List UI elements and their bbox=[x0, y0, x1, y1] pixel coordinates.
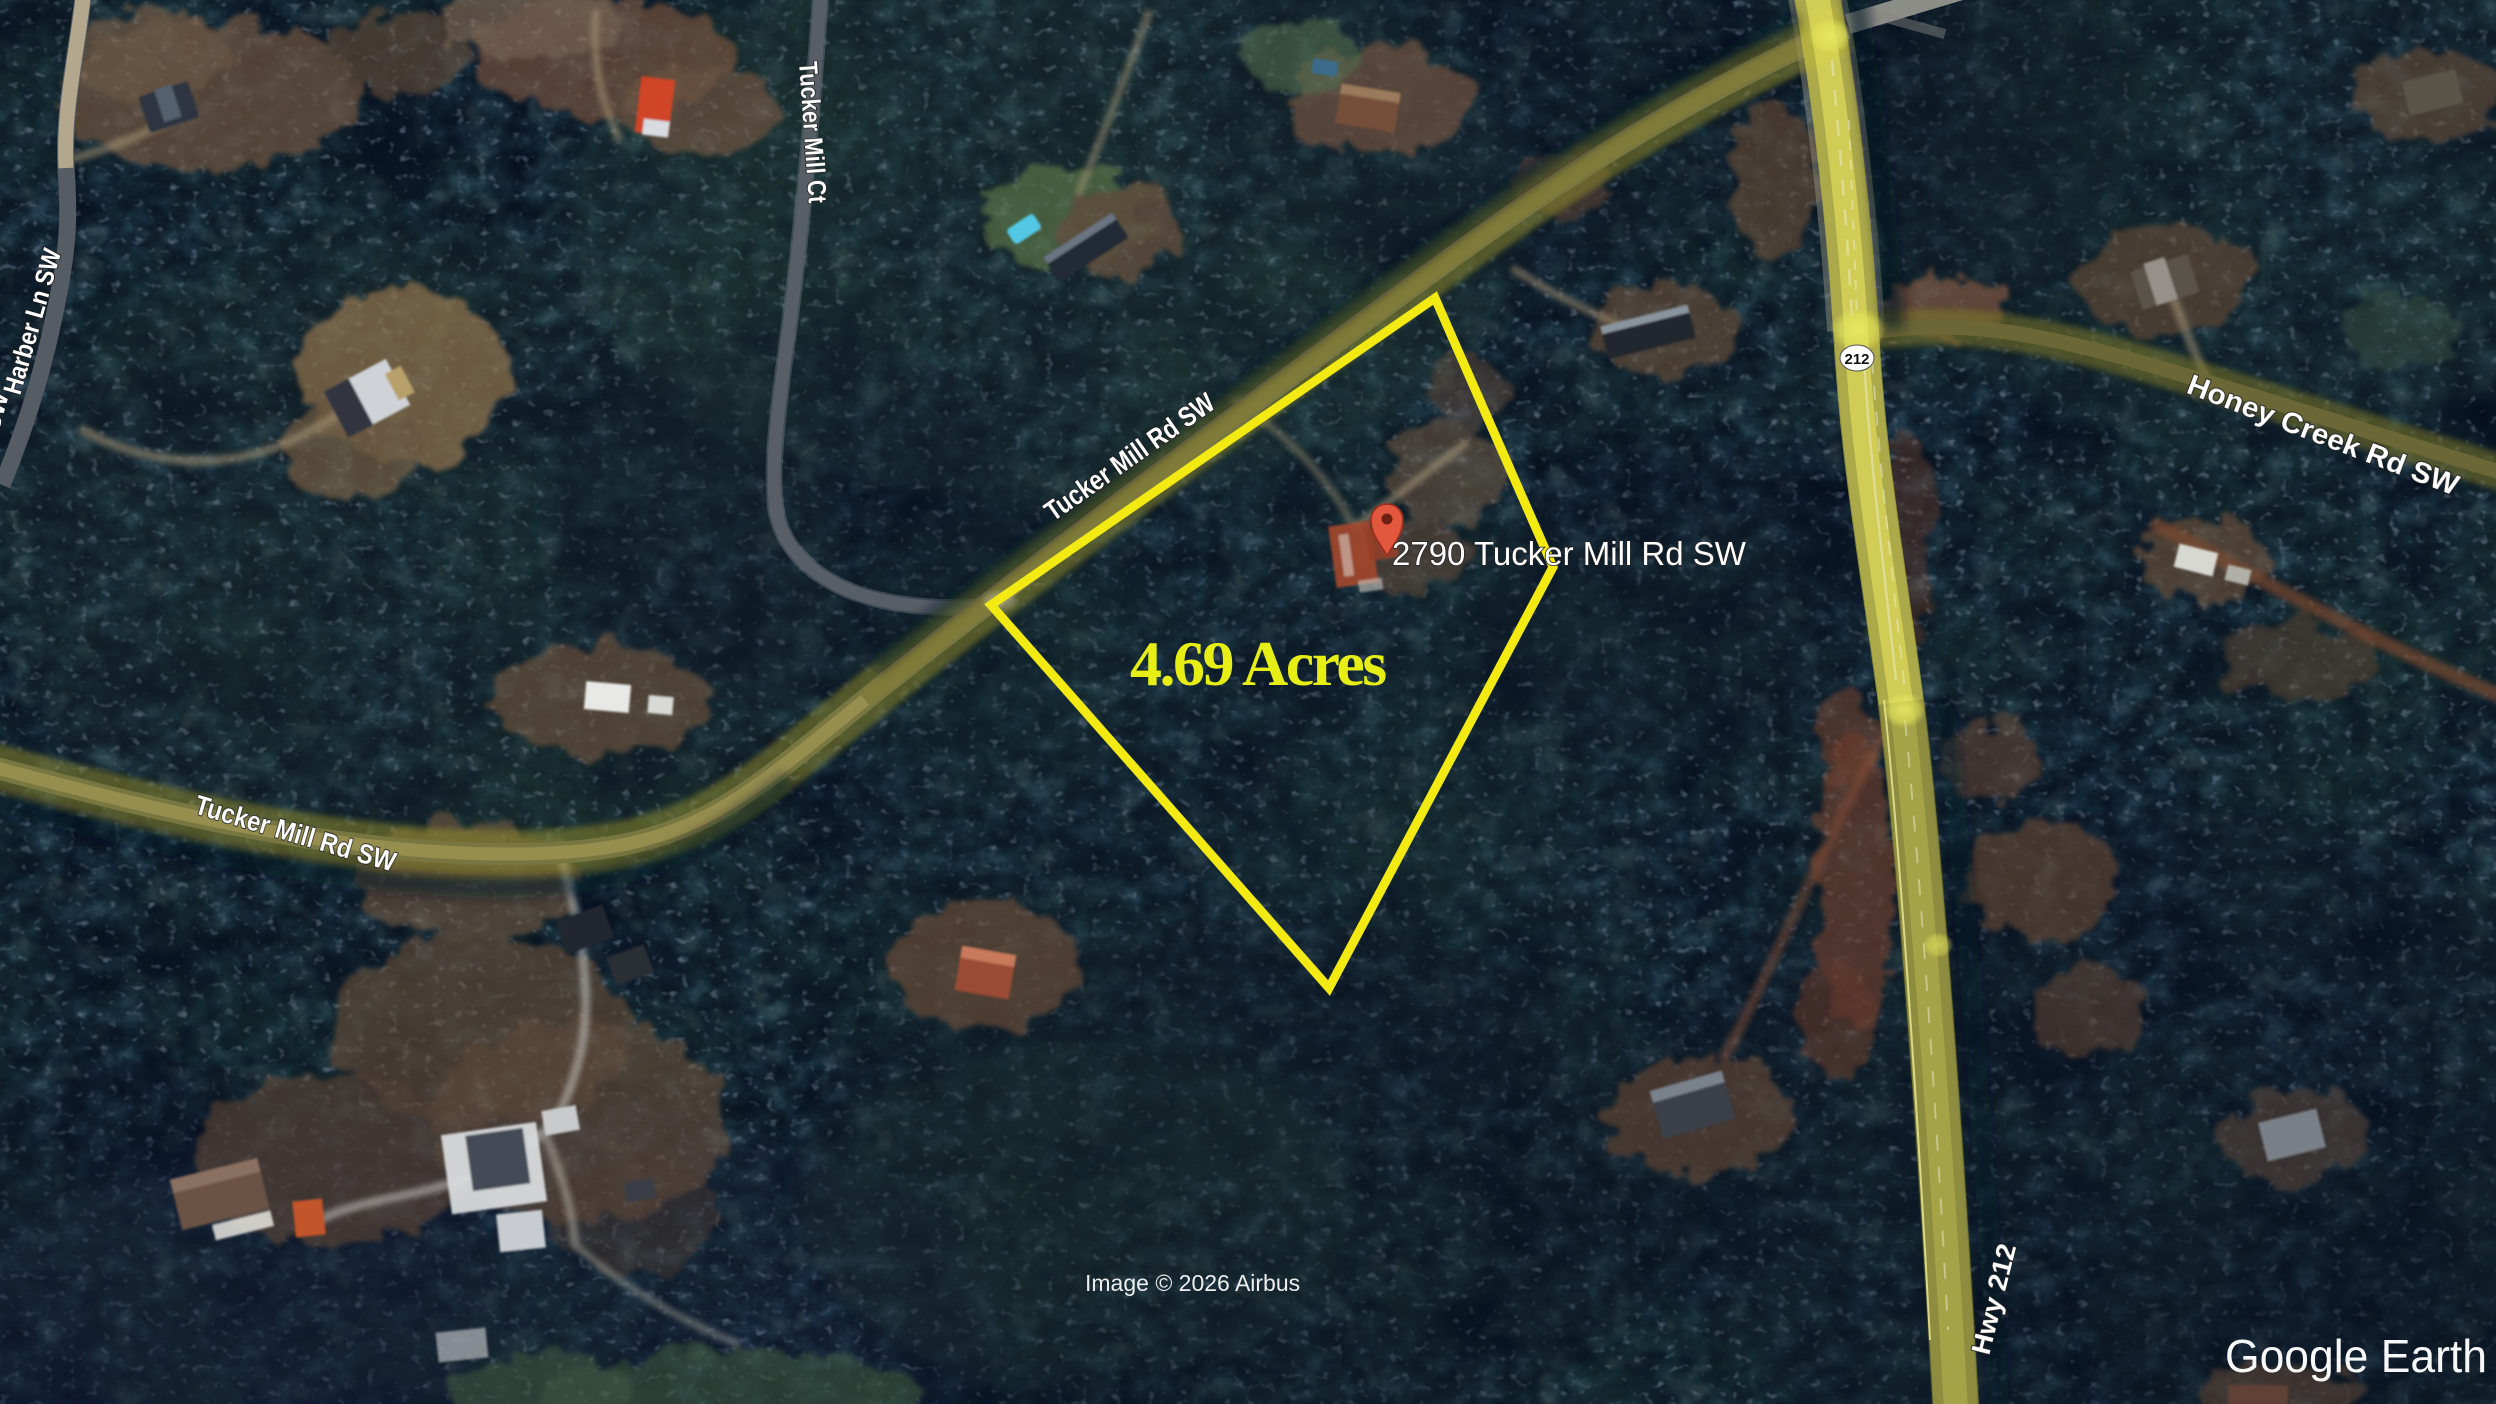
svg-text:Google Earth: Google Earth bbox=[2225, 1330, 2487, 1382]
svg-text:212: 212 bbox=[1844, 351, 1869, 368]
svg-text:4.69 Acres: 4.69 Acres bbox=[1130, 628, 1386, 699]
svg-text:2790 Tucker Mill Rd SW: 2790 Tucker Mill Rd SW bbox=[1392, 535, 1747, 572]
svg-text:Image © 2026 Airbus: Image © 2026 Airbus bbox=[1085, 1270, 1300, 1296]
